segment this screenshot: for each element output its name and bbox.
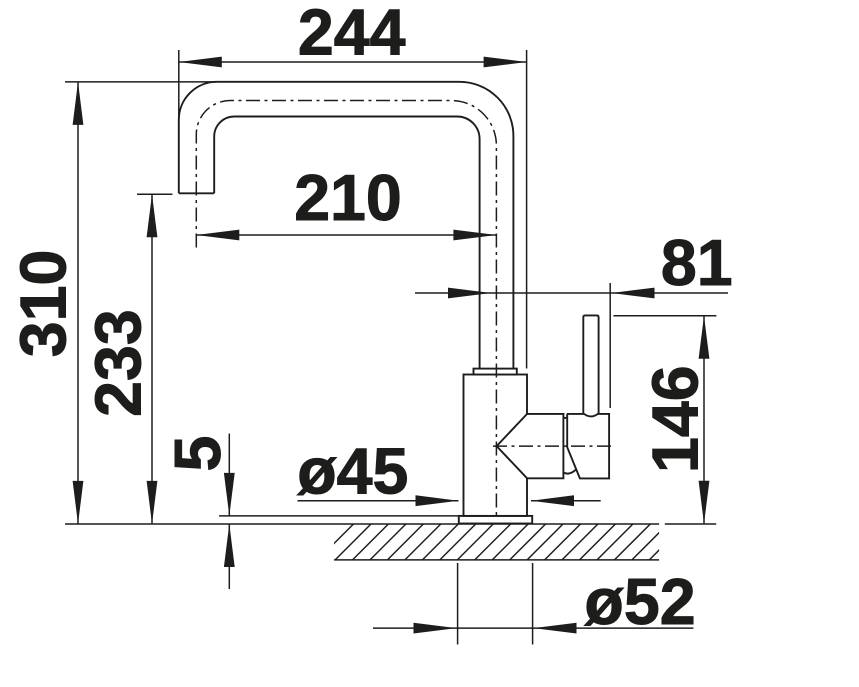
svg-text:81: 81 (661, 227, 733, 299)
svg-text:ø52: ø52 (584, 566, 695, 638)
svg-text:210: 210 (294, 162, 402, 234)
svg-text:310: 310 (8, 250, 80, 358)
svg-text:146: 146 (640, 365, 712, 473)
svg-text:233: 233 (83, 309, 155, 417)
svg-text:ø45: ø45 (297, 436, 408, 508)
svg-text:244: 244 (298, 0, 406, 69)
svg-text:5: 5 (162, 436, 234, 472)
